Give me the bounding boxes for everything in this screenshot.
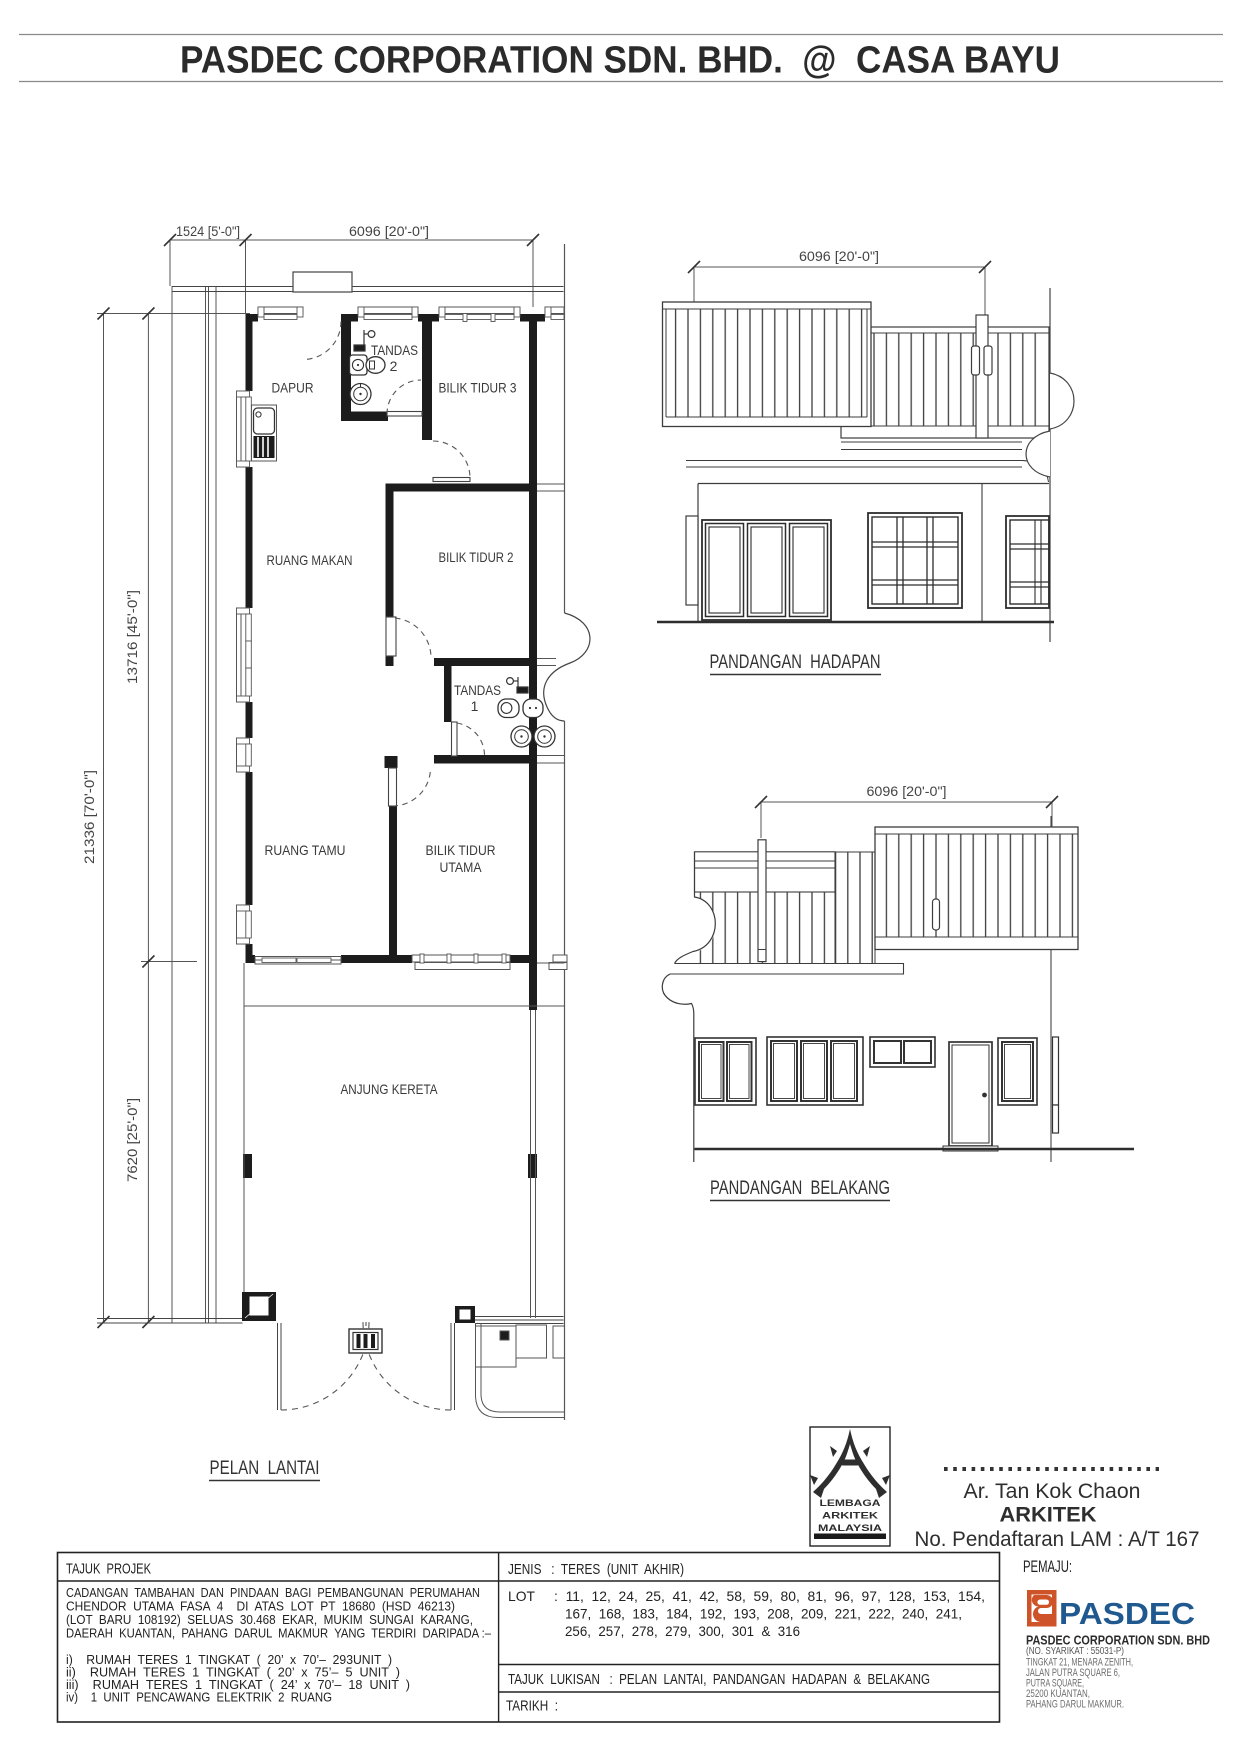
svg-text:PEMAJU:: PEMAJU: xyxy=(1023,1558,1072,1576)
svg-text:RUANG TAMU: RUANG TAMU xyxy=(265,842,346,858)
svg-text:2: 2 xyxy=(390,358,398,374)
svg-text:TAJUK LUKISAN : PELAN LAN: TAJUK LUKISAN : PELAN LANTAI, PANDANGAN … xyxy=(508,1672,930,1688)
svg-text:ARKITEK: ARKITEK xyxy=(822,1511,878,1522)
svg-text:PAHANG DARUL MAKMUR.: PAHANG DARUL MAKMUR. xyxy=(1026,1699,1124,1711)
svg-text:LOT : 11, 12, 24, 25,: LOT : 11, 12, 24, 25, 41, 42, 58, 59, 80… xyxy=(508,1588,985,1604)
svg-text:1524 [5'-0"]: 1524 [5'-0"] xyxy=(176,223,240,239)
svg-text:(NO. SYARIKAT : 55031-P): (NO. SYARIKAT : 55031-P) xyxy=(1026,1646,1124,1657)
svg-text:ANJUNG KERETA: ANJUNG KERETA xyxy=(341,1081,439,1097)
svg-text:PANDANGAN BELAKANG: PANDANGAN BELAKANG xyxy=(710,1177,890,1199)
svg-text:BILIK TIDUR 3: BILIK TIDUR 3 xyxy=(439,380,517,396)
svg-text:BILIK TIDUR: BILIK TIDUR xyxy=(426,842,496,858)
svg-text:TANDAS: TANDAS xyxy=(371,342,418,358)
svg-text:RUANG MAKAN: RUANG MAKAN xyxy=(267,552,353,568)
svg-text:256, 257, 278, 279, 300,: 256, 257, 278, 279, 300, 301 & 316 xyxy=(565,1623,800,1639)
svg-text:1: 1 xyxy=(471,698,479,714)
svg-text:iv) 1 UNIT PENCAWANG ELE: iv) 1 UNIT PENCAWANG ELEKTRIK 2 RUANG xyxy=(66,1690,332,1705)
svg-text:TAJUK PROJEK: TAJUK PROJEK xyxy=(66,1562,151,1578)
svg-text:MALAYSIA: MALAYSIA xyxy=(818,1523,882,1534)
svg-text:TANDAS: TANDAS xyxy=(454,682,501,698)
svg-text:BILIK TIDUR 2: BILIK TIDUR 2 xyxy=(439,549,514,565)
svg-text:LEMBAGA: LEMBAGA xyxy=(820,1498,881,1509)
svg-text:PANDANGAN HADAPAN: PANDANGAN HADAPAN xyxy=(710,651,881,673)
svg-text:PASDEC CORPORATION SDN. BHD.: PASDEC CORPORATION SDN. BHD. @ CASA BAYU xyxy=(180,40,1060,82)
svg-text:167, 168, 183, 184, 192,: 167, 168, 183, 184, 192, 193, 208, 209, … xyxy=(565,1606,962,1622)
svg-text:6096 [20'-0"]: 6096 [20'-0"] xyxy=(867,783,947,799)
svg-text:ARKITEK: ARKITEK xyxy=(1000,1504,1097,1527)
svg-text:UTAMA: UTAMA xyxy=(440,859,483,875)
svg-text:7620 [25'-0"]: 7620 [25'-0"] xyxy=(124,1098,140,1182)
svg-text:21336 [70'-0"]: 21336 [70'-0"] xyxy=(81,770,97,864)
svg-text:PASDEC: PASDEC xyxy=(1059,1596,1195,1631)
svg-text:JENIS : TERES (UNIT AKHIR: JENIS : TERES (UNIT AKHIR) xyxy=(508,1562,684,1578)
svg-text:13716 [45'-0"]: 13716 [45'-0"] xyxy=(124,590,140,684)
svg-text:TARIKH :: TARIKH : xyxy=(506,1699,558,1715)
svg-text:No. Pendaftaran LAM : A/T 167: No. Pendaftaran LAM : A/T 167 xyxy=(915,1527,1200,1551)
svg-text:6096 [20'-0"]: 6096 [20'-0"] xyxy=(799,248,879,264)
svg-text:DAPUR: DAPUR xyxy=(272,380,314,396)
svg-text:Ar. Tan Kok Chaon: Ar. Tan Kok Chaon xyxy=(964,1480,1141,1503)
svg-text:PELAN LANTAI: PELAN LANTAI xyxy=(210,1457,320,1479)
svg-text:6096 [20'-0"]: 6096 [20'-0"] xyxy=(349,223,429,239)
svg-text:DAERAH KUANTAN, PAHANG DARU: DAERAH KUANTAN, PAHANG DARUL MAKMUR YANG… xyxy=(66,1626,492,1641)
